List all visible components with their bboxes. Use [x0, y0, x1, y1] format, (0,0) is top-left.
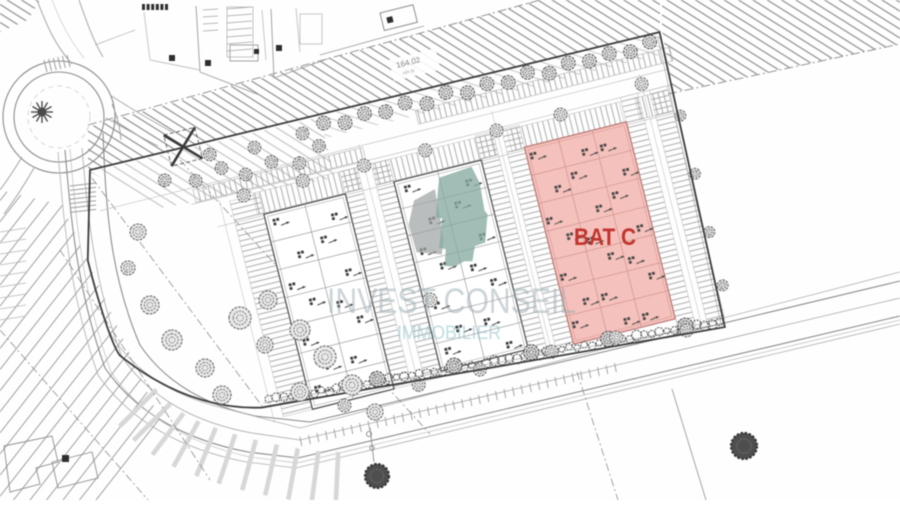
svg-text:INVEST CONSEIL: INVEST CONSEIL	[327, 282, 576, 321]
svg-text:BAT C: BAT C	[574, 224, 636, 251]
svg-text:IMMOBILIER: IMMOBILIER	[397, 323, 501, 344]
